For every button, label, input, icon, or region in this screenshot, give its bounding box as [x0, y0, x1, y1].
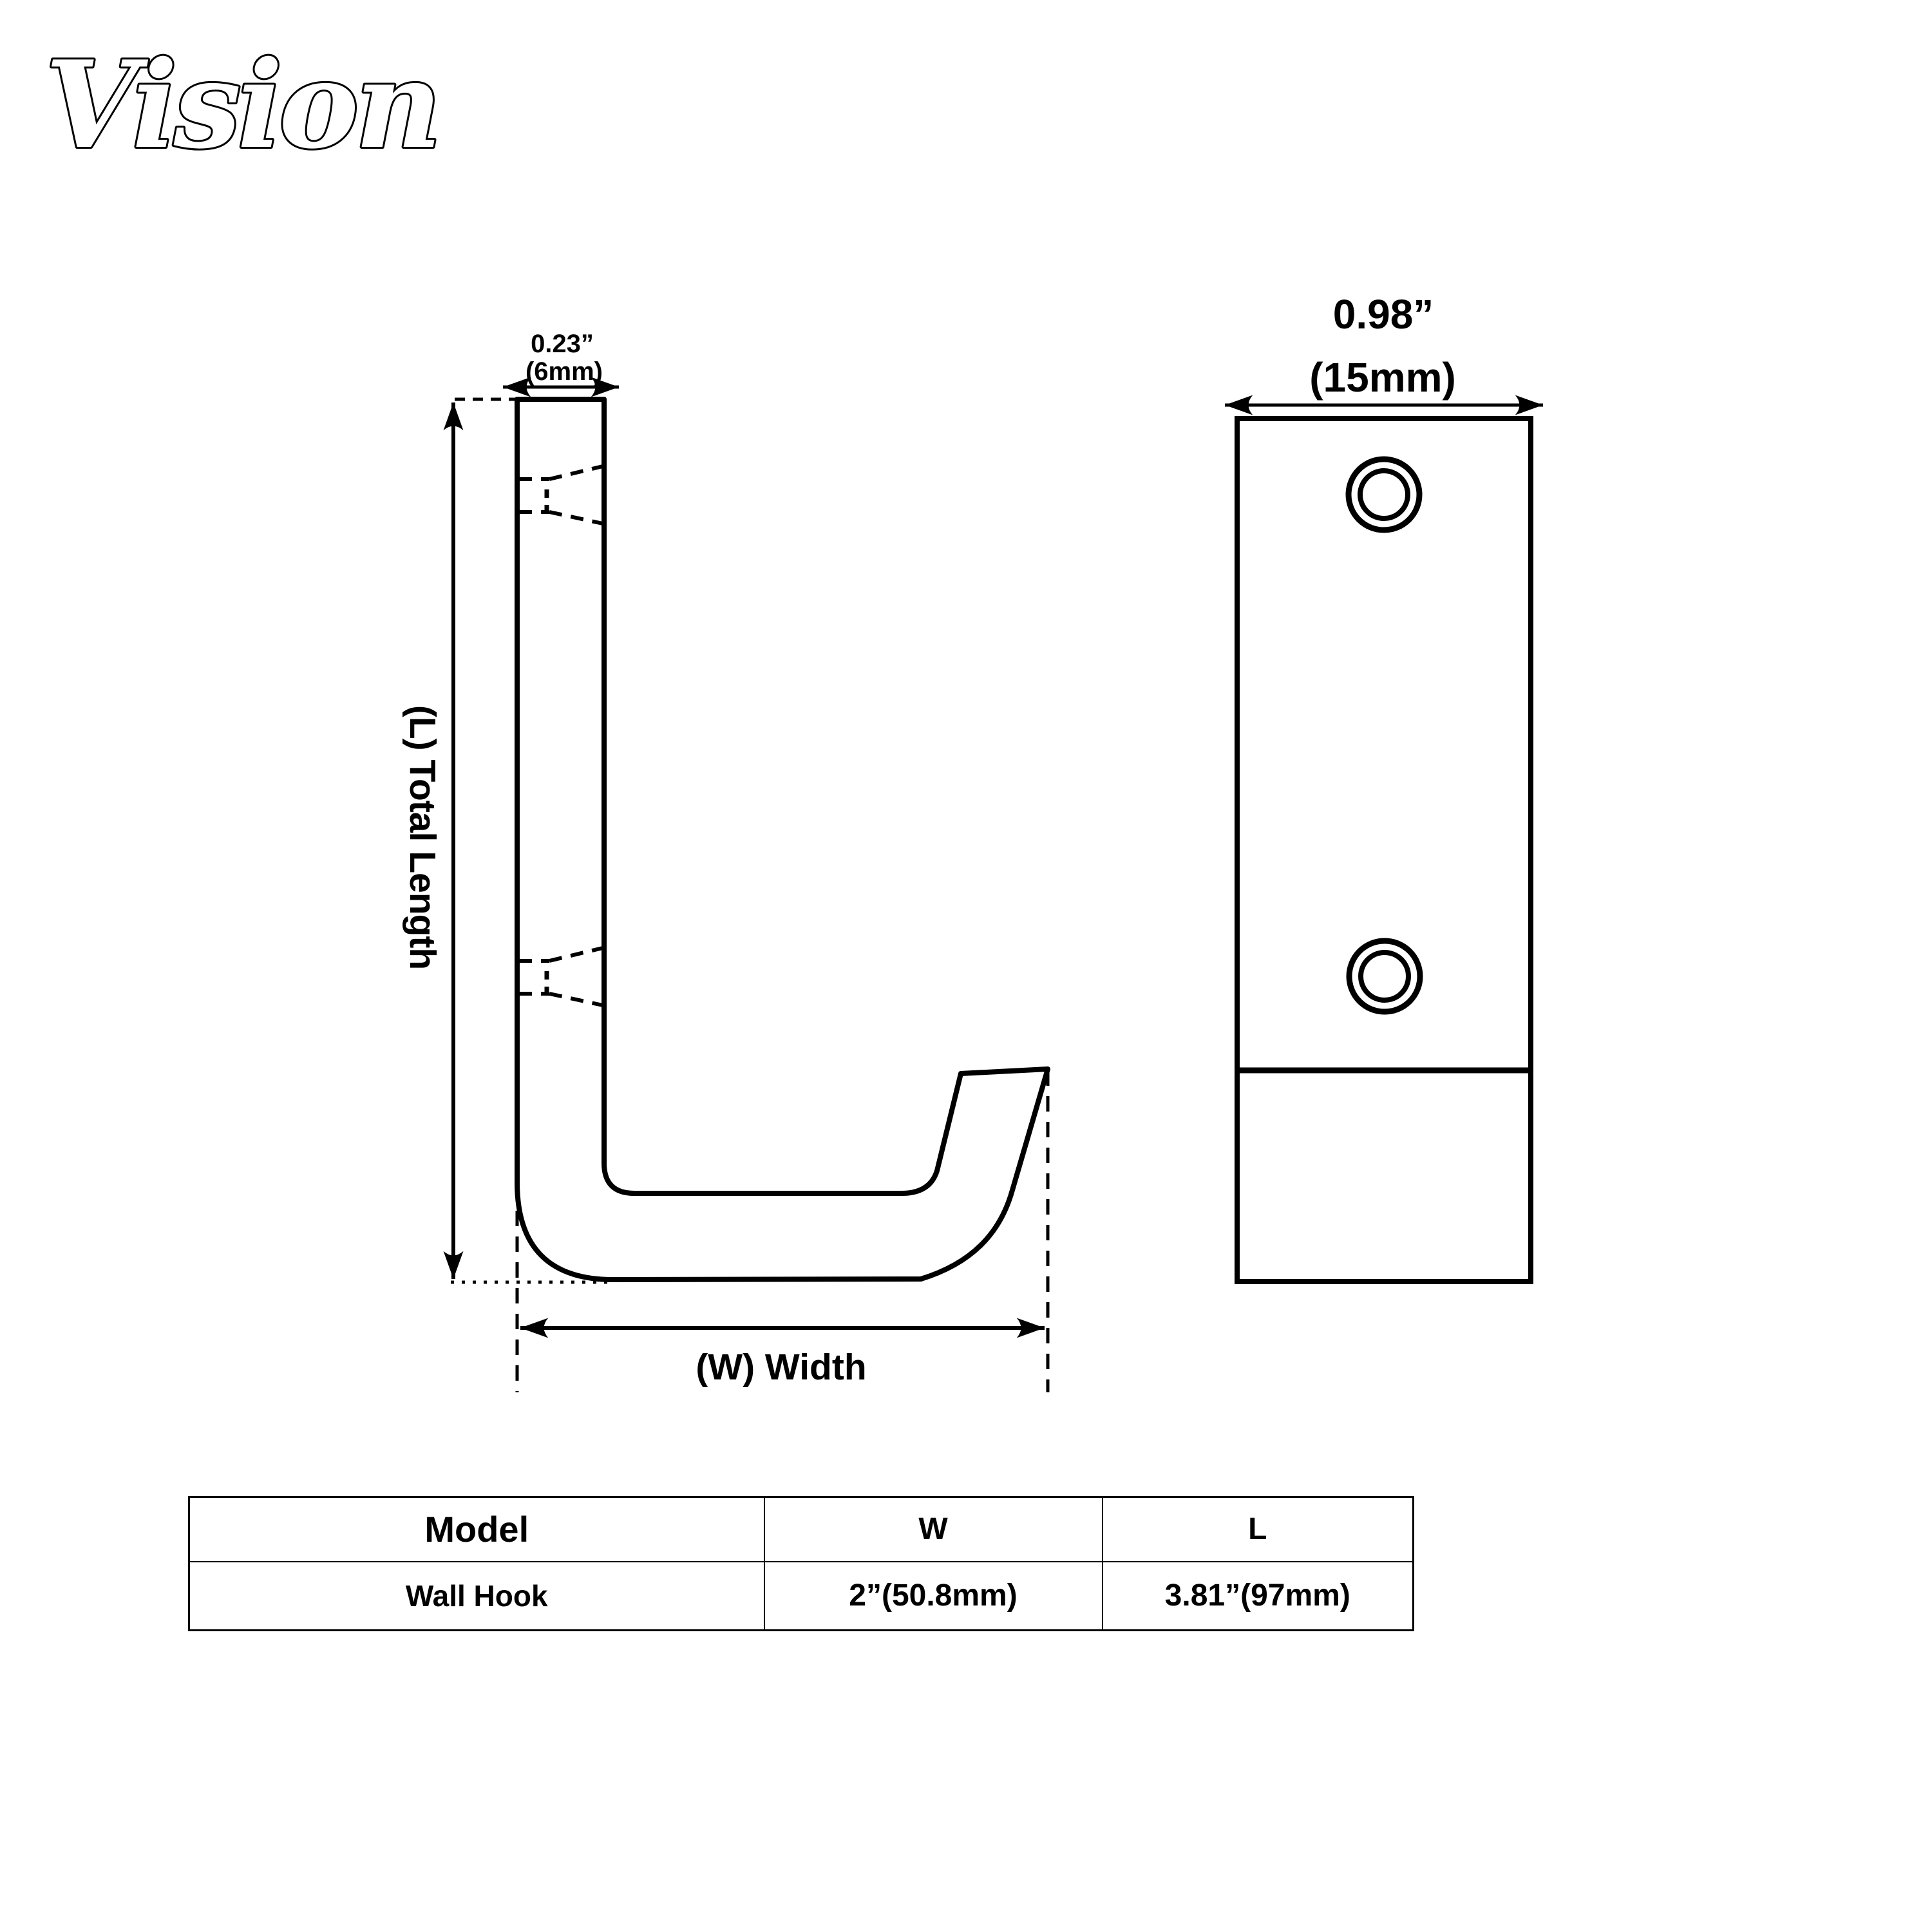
width-label: (W) Width — [696, 1347, 866, 1388]
spec-model-value: Wall Hook — [189, 1562, 764, 1631]
hook-side-profile-outline — [517, 399, 1048, 1280]
vision-logo: Vision — [45, 34, 438, 175]
plate-width-inches-label: 0.98” — [1333, 291, 1434, 337]
spec-l-value: 3.81”(97mm) — [1103, 1562, 1414, 1631]
spec-table-data-row: Wall Hook 2”(50.8mm) 3.81”(97mm) — [189, 1562, 1414, 1631]
spec-table: Model W L Wall Hook 2”(50.8mm) 3.81”(97m… — [188, 1496, 1412, 1629]
total-length-label: (L) Total Length — [402, 705, 443, 969]
spec-header-l: L — [1103, 1497, 1414, 1562]
spec-header-model: Model — [189, 1497, 764, 1562]
thickness-inches-label: 0.23” — [531, 330, 594, 358]
plate-width-mm-label: (15mm) — [1309, 354, 1456, 401]
spec-header-w: W — [764, 1497, 1103, 1562]
hook-front-plate-outline — [1237, 419, 1531, 1282]
thickness-mm-label: (6mm) — [526, 357, 603, 386]
technical-drawing: Vision 0.23” (6mm) (L) Total Le — [0, 0, 1932, 1932]
product-dimension-sheet: Vision 0.23” (6mm) (L) Total Le — [0, 0, 1932, 1932]
spec-table-header-row: Model W L — [189, 1497, 1414, 1562]
spec-w-value: 2”(50.8mm) — [764, 1562, 1103, 1631]
